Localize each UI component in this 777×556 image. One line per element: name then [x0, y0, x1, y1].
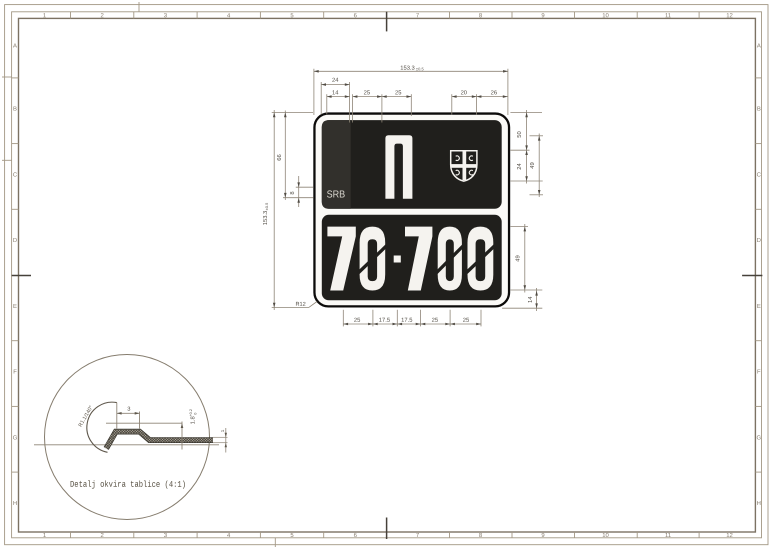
svg-text:H: H	[13, 501, 17, 507]
svg-text:14: 14	[332, 90, 339, 96]
svg-text:20: 20	[461, 90, 467, 96]
svg-text:10: 10	[602, 533, 609, 539]
svg-text:A: A	[757, 43, 761, 49]
svg-text:C: C	[13, 172, 18, 178]
svg-text:E: E	[13, 304, 17, 310]
svg-text:8: 8	[290, 191, 296, 194]
svg-text:B: B	[13, 106, 17, 112]
svg-text:2: 2	[100, 13, 103, 19]
svg-text:G: G	[757, 435, 762, 441]
svg-text:3: 3	[127, 407, 130, 413]
svg-text:G: G	[13, 435, 18, 441]
svg-text:153.3: 153.3	[263, 211, 269, 226]
svg-text:A: A	[13, 43, 17, 49]
svg-text:25: 25	[354, 318, 360, 324]
svg-text:SRB: SRB	[327, 190, 346, 201]
svg-text:F: F	[757, 369, 761, 375]
svg-text:11: 11	[665, 533, 671, 539]
svg-text:14: 14	[528, 296, 534, 303]
svg-text:Detalj okvira tablice (4:1): Detalj okvira tablice (4:1)	[70, 480, 186, 490]
svg-text:25: 25	[395, 90, 401, 96]
svg-text:11: 11	[665, 13, 671, 19]
svg-text:25: 25	[364, 90, 370, 96]
svg-text:26: 26	[491, 90, 497, 96]
svg-text:17.5: 17.5	[401, 318, 412, 324]
svg-text:B: B	[757, 106, 761, 112]
svg-text:1: 1	[43, 13, 46, 19]
svg-text:9: 9	[541, 13, 544, 19]
svg-text:C: C	[757, 172, 762, 178]
svg-text:49: 49	[530, 162, 536, 168]
svg-text:17.5: 17.5	[379, 318, 390, 324]
svg-text:49: 49	[515, 255, 521, 261]
svg-text:24: 24	[332, 78, 339, 84]
svg-text:1: 1	[220, 429, 225, 432]
svg-text:D: D	[13, 238, 17, 244]
svg-text:E: E	[757, 304, 761, 310]
svg-text:12: 12	[726, 533, 733, 539]
svg-text:2: 2	[100, 533, 103, 539]
svg-text:25: 25	[463, 318, 469, 324]
svg-text:153.3: 153.3	[400, 66, 415, 72]
svg-text:10: 10	[602, 13, 609, 19]
svg-text:24: 24	[517, 163, 523, 170]
svg-text:50: 50	[517, 131, 523, 137]
svg-text:25: 25	[432, 318, 438, 324]
svg-text:+0.2: +0.2	[189, 409, 193, 417]
svg-text:±0.5: ±0.5	[264, 202, 269, 211]
svg-text:7: 7	[416, 533, 419, 539]
svg-text:D: D	[757, 238, 761, 244]
svg-text:0: 0	[193, 413, 197, 415]
svg-text:H: H	[757, 501, 761, 507]
svg-text:1: 1	[43, 533, 46, 539]
svg-text:±0.5: ±0.5	[416, 66, 425, 71]
svg-text:12: 12	[726, 13, 733, 19]
svg-text:9: 9	[541, 533, 544, 539]
svg-text:66: 66	[277, 154, 283, 160]
svg-text:R12: R12	[295, 302, 305, 308]
svg-text:F: F	[13, 369, 17, 375]
svg-text:7: 7	[416, 13, 419, 19]
